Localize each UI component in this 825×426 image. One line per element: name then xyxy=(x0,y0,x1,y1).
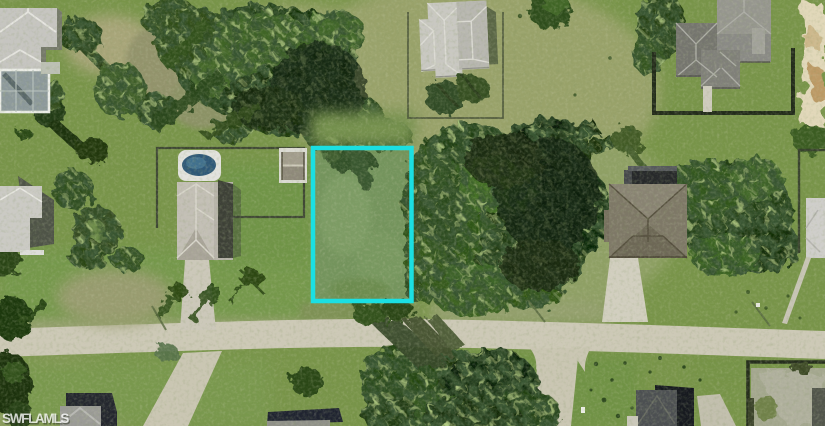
svg-text:SWFLAMLS: SWFLAMLS xyxy=(2,411,69,426)
